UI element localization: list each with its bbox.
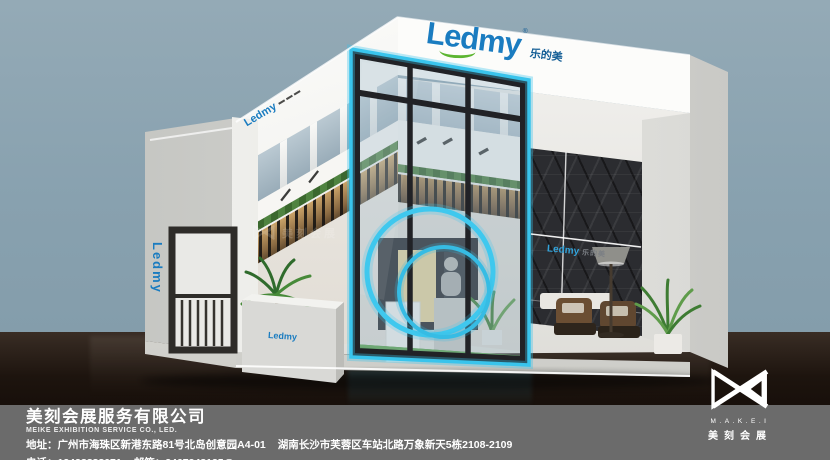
agency-watermark-text: 美刻会展 xyxy=(282,225,338,241)
company-name-cn: 美刻会展服务有限公司 xyxy=(26,408,512,426)
wall-slash-mark xyxy=(308,170,318,183)
agency-bowtie-icon xyxy=(709,367,771,411)
wall-slash-mark xyxy=(478,148,488,155)
counter-logo: Ledmy xyxy=(268,330,298,342)
feature-wall-wordmark-cn: 乐的美 xyxy=(582,249,607,258)
registered-mark: ® xyxy=(522,28,528,36)
address-value-2: 湖南长沙市芙蓉区车站北路万象新天5栋2108-2109 xyxy=(278,439,513,451)
left-wall-vertical-logo: Ledmy xyxy=(150,242,165,294)
footer-company-block: 美刻会展服务有限公司 MEIKE EXHIBITION SERVICE CO.,… xyxy=(26,408,512,460)
feature-wall-wordmark: Ledmy xyxy=(547,243,580,257)
booth-render-scene: Ledmy®乐的美 Ledmy Ledmy Ledmy乐的美 Ledmy 美刻会… xyxy=(0,0,830,460)
agency-watermark-icon xyxy=(252,224,276,241)
wall-slash-mark xyxy=(442,138,452,145)
agency-logo-block: M.A.K.E.I 美刻会展 xyxy=(690,367,790,442)
company-address-line: 地址：广州市海珠区新港东路81号北岛创意园A4-01湖南长沙市芙蓉区车站北路万象… xyxy=(26,437,512,452)
brand-wordmark-cn: 乐的美 xyxy=(529,48,563,64)
wall-slash-mark xyxy=(416,137,426,144)
company-contact-line: 电话：13428888071邮箱：2467348135@qq.com xyxy=(26,455,512,460)
agency-name-latin: M.A.K.E.I xyxy=(690,418,790,425)
wall-slash-mark xyxy=(280,188,290,201)
footer-info-bar: 美刻会展服务有限公司 MEIKE EXHIBITION SERVICE CO.,… xyxy=(0,405,830,460)
agency-watermark: 美刻会展 xyxy=(252,224,338,241)
address-label: 地址： xyxy=(26,439,58,451)
agency-name-cn: 美刻会展 xyxy=(690,427,790,442)
company-name-en: MEIKE EXHIBITION SERVICE CO., LED. xyxy=(26,427,512,434)
address-value-1: 广州市海珠区新港东路81号北岛创意园A4-01 xyxy=(58,439,266,451)
